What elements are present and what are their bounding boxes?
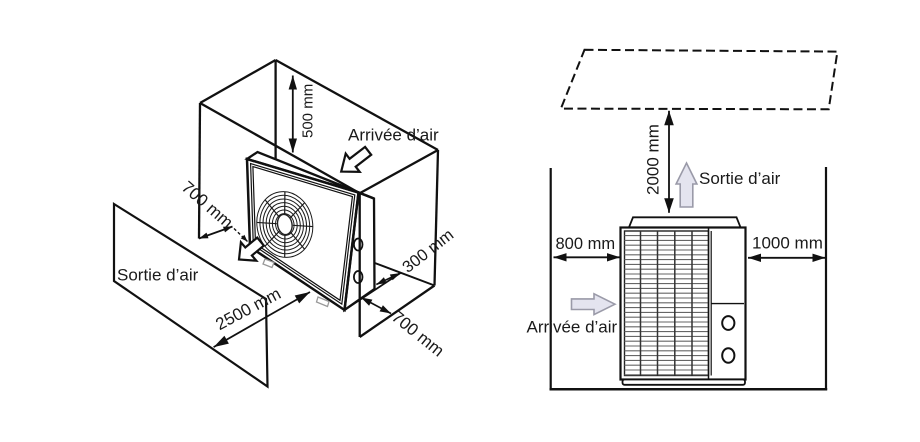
svg-text:2000 mm: 2000 mm	[644, 124, 663, 195]
svg-text:500 mm: 500 mm	[300, 84, 317, 138]
svg-text:1000 mm: 1000 mm	[752, 234, 823, 253]
svg-text:Arrivée d’air: Arrivée d’air	[348, 126, 439, 145]
svg-text:Sortie d’air: Sortie d’air	[117, 266, 199, 285]
svg-text:Arrivée d’air: Arrivée d’air	[527, 318, 618, 337]
svg-text:800 mm: 800 mm	[556, 235, 616, 253]
svg-text:Sortie d’air: Sortie d’air	[699, 169, 781, 188]
